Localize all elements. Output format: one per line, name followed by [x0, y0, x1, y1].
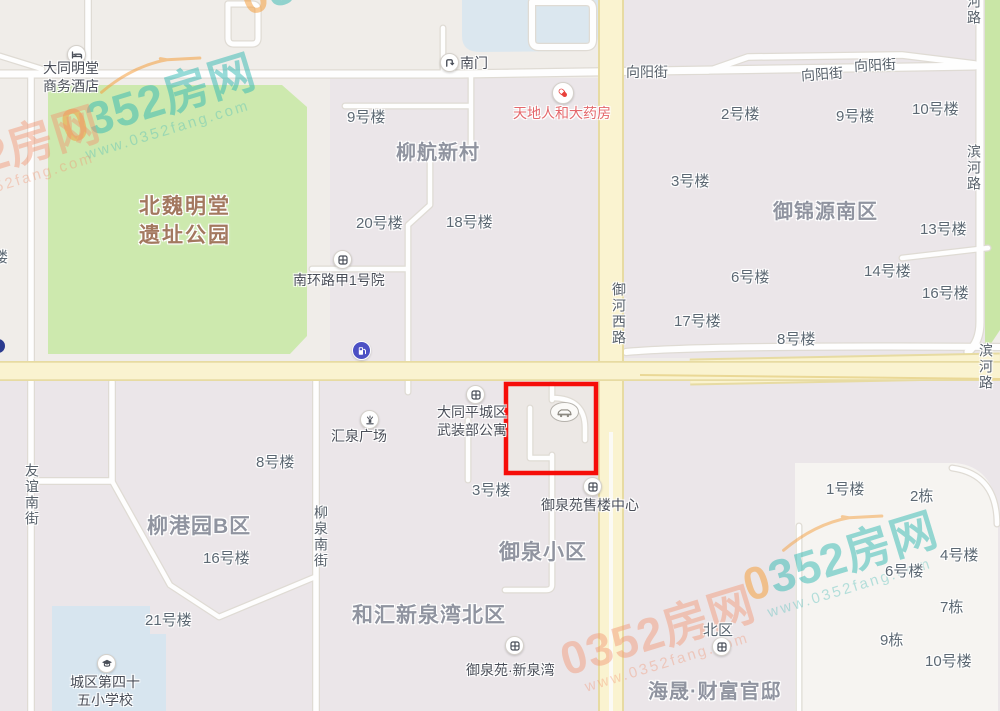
road-label-binhe-rd: 滨河路: [964, 144, 984, 192]
building-label-beiqu: 北区: [703, 619, 733, 640]
area-label-haisheng: 海晟·财富官邸: [648, 675, 782, 704]
road-label-binhe-rd: 滨河路: [964, 0, 984, 26]
building-label: 21号楼: [145, 609, 192, 630]
poi-label-armed-forces-apt[interactable]: 大同平城区武装部公寓: [437, 403, 507, 439]
road-label-xiangyang-st: 向阳街: [626, 62, 668, 82]
building-label: 1号楼: [826, 478, 864, 499]
road-label-xiangyang-st: 向阳街: [854, 54, 897, 76]
building-label: 9号楼: [836, 105, 874, 126]
poi-label-pharmacy[interactable]: 天地人和大药房: [513, 103, 611, 123]
poi-label-yuquanyuan-sales[interactable]: 御泉苑售楼中心: [541, 495, 639, 515]
building-label: 18号楼: [446, 211, 493, 232]
building-label: 6号楼: [885, 560, 923, 581]
area-label-liuhang-xincun: 柳航新村: [396, 136, 480, 165]
poi-label-yuquanyuan-xinquanwan[interactable]: 御泉苑·新泉湾: [466, 660, 555, 680]
poi-label-school[interactable]: 城区第四十五小学校: [70, 673, 140, 709]
poi-label-huiquan-plaza[interactable]: 汇泉广场: [331, 426, 387, 446]
road-label-binhe-rd: 滨河路: [976, 343, 996, 391]
building-label: 16号楼: [203, 547, 250, 568]
building-label: 3号楼: [472, 479, 510, 500]
building-label: 14号楼: [864, 260, 911, 281]
map-canvas[interactable]: 0352房网 www.0352fang.com 0352房网 www.0352f…: [0, 0, 1000, 711]
greenbelt: [985, 0, 1000, 348]
road-label-youyi-south-st: 友谊南街: [22, 463, 42, 527]
community-icon[interactable]: [583, 477, 602, 496]
poi-label-south-gate[interactable]: 南门: [460, 53, 488, 73]
building-label: 7栋: [940, 596, 963, 617]
area-label-hehui-xinquanwan: 和汇新泉湾北区: [352, 599, 506, 629]
area-label-liugangyuan-b: 柳港园B区: [147, 510, 251, 540]
building-label: 8号楼: [777, 328, 815, 349]
building-label: 16号楼: [922, 282, 969, 303]
community-icon[interactable]: [505, 636, 524, 655]
building-label: 4号楼: [940, 544, 978, 565]
pharmacy-icon[interactable]: [552, 82, 574, 104]
gate-icon[interactable]: [440, 53, 459, 72]
building-label: 10号楼: [912, 98, 959, 119]
community-icon[interactable]: [466, 385, 485, 404]
building-label: 2号楼: [721, 103, 759, 124]
building-label-partial: 楼: [0, 246, 8, 267]
park-name-label: 北魏明堂遗址公园: [130, 192, 240, 251]
road-label-liuquan-south-st: 柳泉南街: [311, 505, 331, 569]
road-label-xiangyang-st: 向阳街: [800, 63, 843, 86]
community-icon[interactable]: [333, 250, 352, 269]
building-label: 13号楼: [920, 218, 967, 239]
area-label-yuquan-xiaoqu: 御泉小区: [499, 536, 587, 566]
school-icon[interactable]: [97, 654, 116, 673]
building-label: 17号楼: [674, 310, 721, 331]
building-label: 9栋: [880, 629, 903, 650]
building-label: 8号楼: [256, 451, 294, 472]
building-label: 2栋: [910, 485, 933, 506]
building-label: 3号楼: [671, 170, 709, 191]
building-label: 10号楼: [925, 650, 972, 671]
building-label: 6号楼: [731, 266, 769, 287]
building-label: 9号楼: [347, 106, 385, 127]
poi-label-hotel[interactable]: 大同明堂商务酒店: [43, 59, 99, 95]
poi-label-nanhuanlu-jia1[interactable]: 南环路甲1号院: [293, 270, 385, 290]
gas-station-icon[interactable]: [352, 341, 371, 360]
car-dealer-icon[interactable]: [550, 402, 579, 422]
building-label: 20号楼: [356, 212, 403, 233]
road-label-yuhe-west-rd: 御河西路: [609, 282, 629, 346]
area-label-yujinyuan-nanqu: 御锦源南区: [773, 195, 878, 224]
